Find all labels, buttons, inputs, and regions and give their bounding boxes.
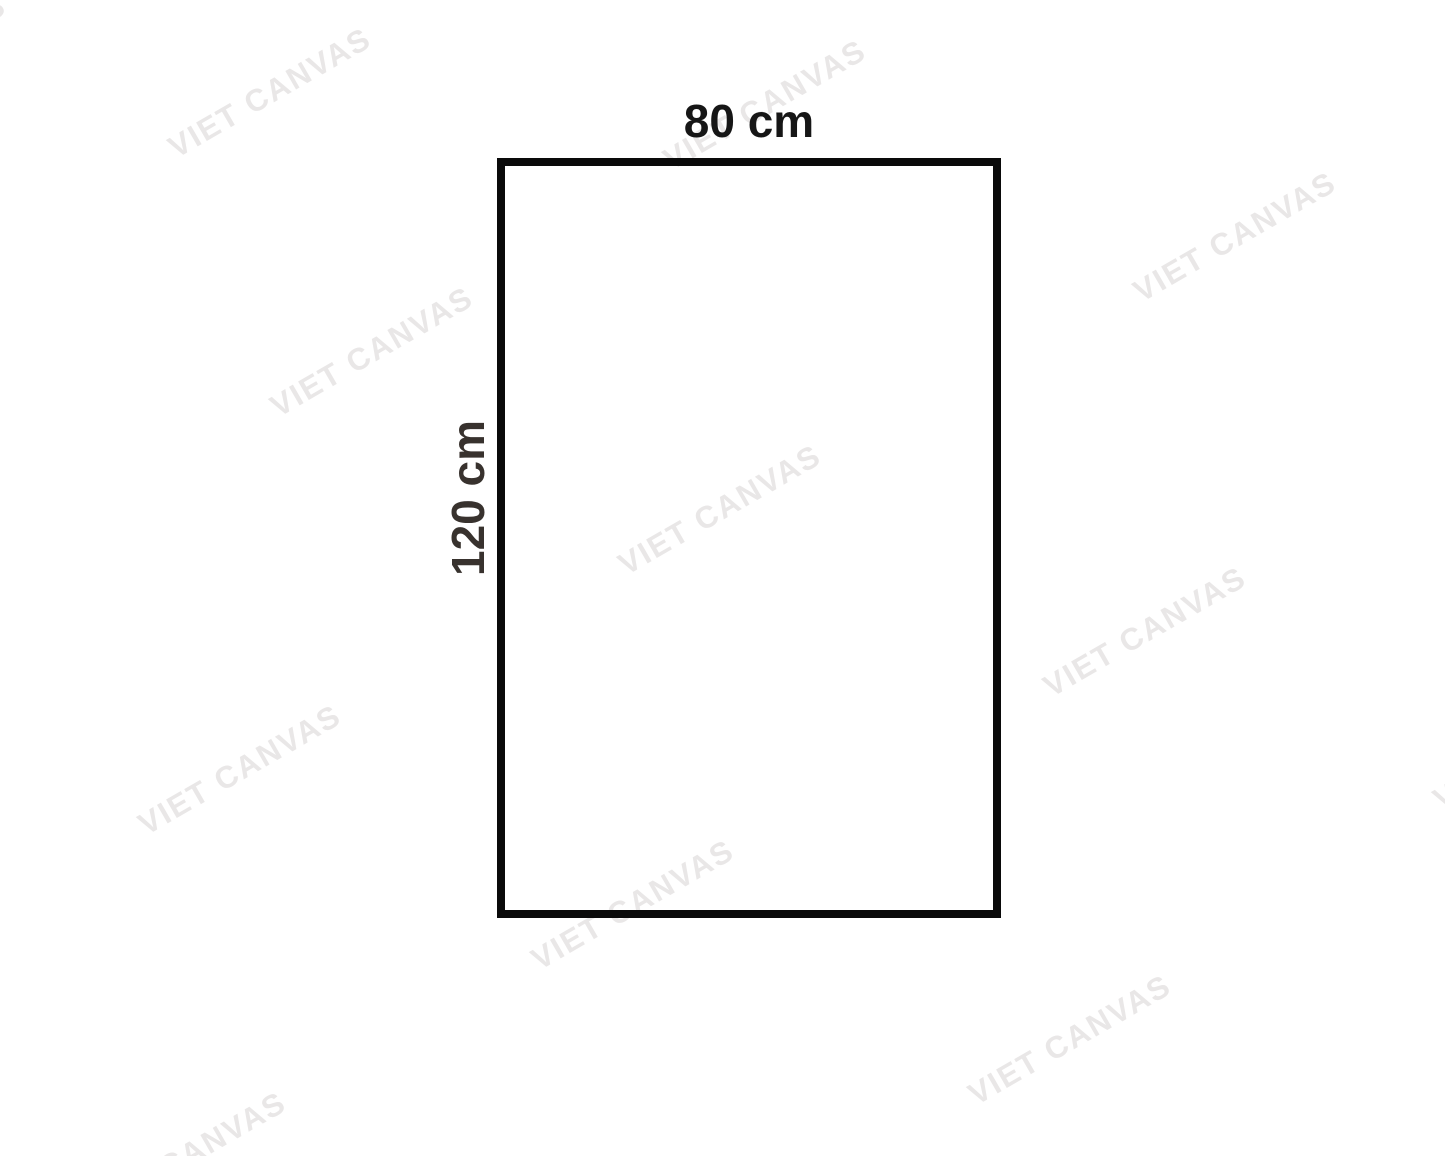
watermark-text: VIET CANVAS xyxy=(0,0,13,133)
watermark-text: VIET CANVAS xyxy=(132,697,348,842)
canvas-outline-rectangle xyxy=(497,158,1001,918)
watermark-text: VIET CANVAS xyxy=(264,279,480,424)
watermark-text: VIET CANVAS xyxy=(962,967,1178,1112)
watermark-text: VIET CANVAS xyxy=(77,1084,293,1156)
width-dimension-label: 80 cm xyxy=(497,98,1001,144)
watermark-text: VIET CANVAS xyxy=(1037,559,1253,704)
watermark-text: VIET CANVAS xyxy=(1427,672,1445,817)
watermark-text: VIET CANVAS xyxy=(1127,164,1343,309)
height-dimension-label: 120 cm xyxy=(445,420,491,576)
watermark-text: VIET CANVAS xyxy=(1412,1132,1445,1156)
canvas-size-mockup: VIET CANVASVIET CANVASVIET CANVASVIET CA… xyxy=(0,0,1445,1156)
watermark-text: VIET CANVAS xyxy=(162,20,378,165)
